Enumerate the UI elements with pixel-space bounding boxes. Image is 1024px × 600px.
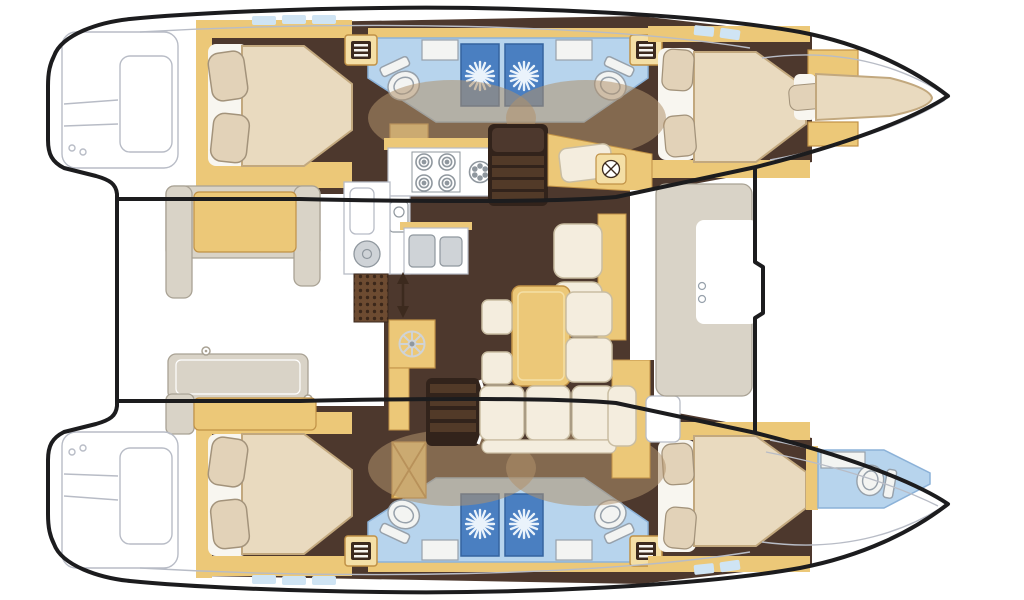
hull-window [312,15,336,24]
lift-ring-icon [202,347,210,355]
door-grate [354,274,388,322]
pillow [663,114,697,157]
pillow [207,50,249,103]
bath-sink [556,40,592,60]
bath-trim [806,446,818,510]
dinette-table [512,286,570,386]
wet-bar [344,182,390,274]
bow-locker [808,50,858,76]
stair-landing [492,128,544,152]
sofa-cushion [526,386,570,440]
floor-plan-canvas [0,0,1024,600]
hull-window [694,25,715,37]
pillow [661,49,694,92]
shower-drain-icon [466,510,494,538]
starboard-companionway [488,124,548,206]
sofa-backrest [482,440,616,453]
cockpit-table [168,354,308,400]
stool [482,352,512,384]
vanity [596,154,626,184]
stair-tread [492,180,544,189]
pillow [207,436,249,489]
sofa-cushion [480,386,524,440]
hull-window [252,16,276,25]
grate-holes [354,274,388,322]
forward-cockpit [656,184,758,396]
stair-tread [430,384,476,393]
galley-sink [440,237,462,266]
stair-tread [492,156,544,165]
c-seat-opening [696,220,758,324]
hull-steps-icon [345,536,377,566]
galley-sink [409,235,435,267]
pillow [661,443,694,486]
pillow [210,112,251,164]
hull-window [252,575,276,584]
shower-drain-icon [510,510,538,538]
pillow [663,506,697,549]
stair-tread [492,168,544,177]
bench-wing [166,186,192,298]
bath-sink [422,40,458,60]
sofa-cushion [566,292,612,336]
helm-wheel-icon [400,332,425,357]
stair-tread [430,410,476,419]
hull-steps-icon [345,35,377,65]
wetbar-sink [354,241,380,267]
hull-window [694,563,715,575]
settee-cushion [554,224,602,278]
bow-locker [808,122,858,146]
salon-window [646,396,680,442]
corner-cushion [608,386,636,446]
pillow [210,498,251,550]
hull-window [312,576,336,585]
catamaran-floor-plan [0,0,1024,600]
port-companionway [426,378,486,446]
sofa-cushion [566,338,612,382]
stair-tread [430,423,476,432]
bath-sink [422,540,458,560]
stool [482,300,512,334]
deck-fitting [699,296,706,303]
deck-fitting [699,283,706,290]
shower-drain-icon [510,62,538,90]
hull-window [282,15,306,24]
hull-window [282,576,306,585]
side-walkway [630,190,656,360]
bath-sink [556,540,592,560]
